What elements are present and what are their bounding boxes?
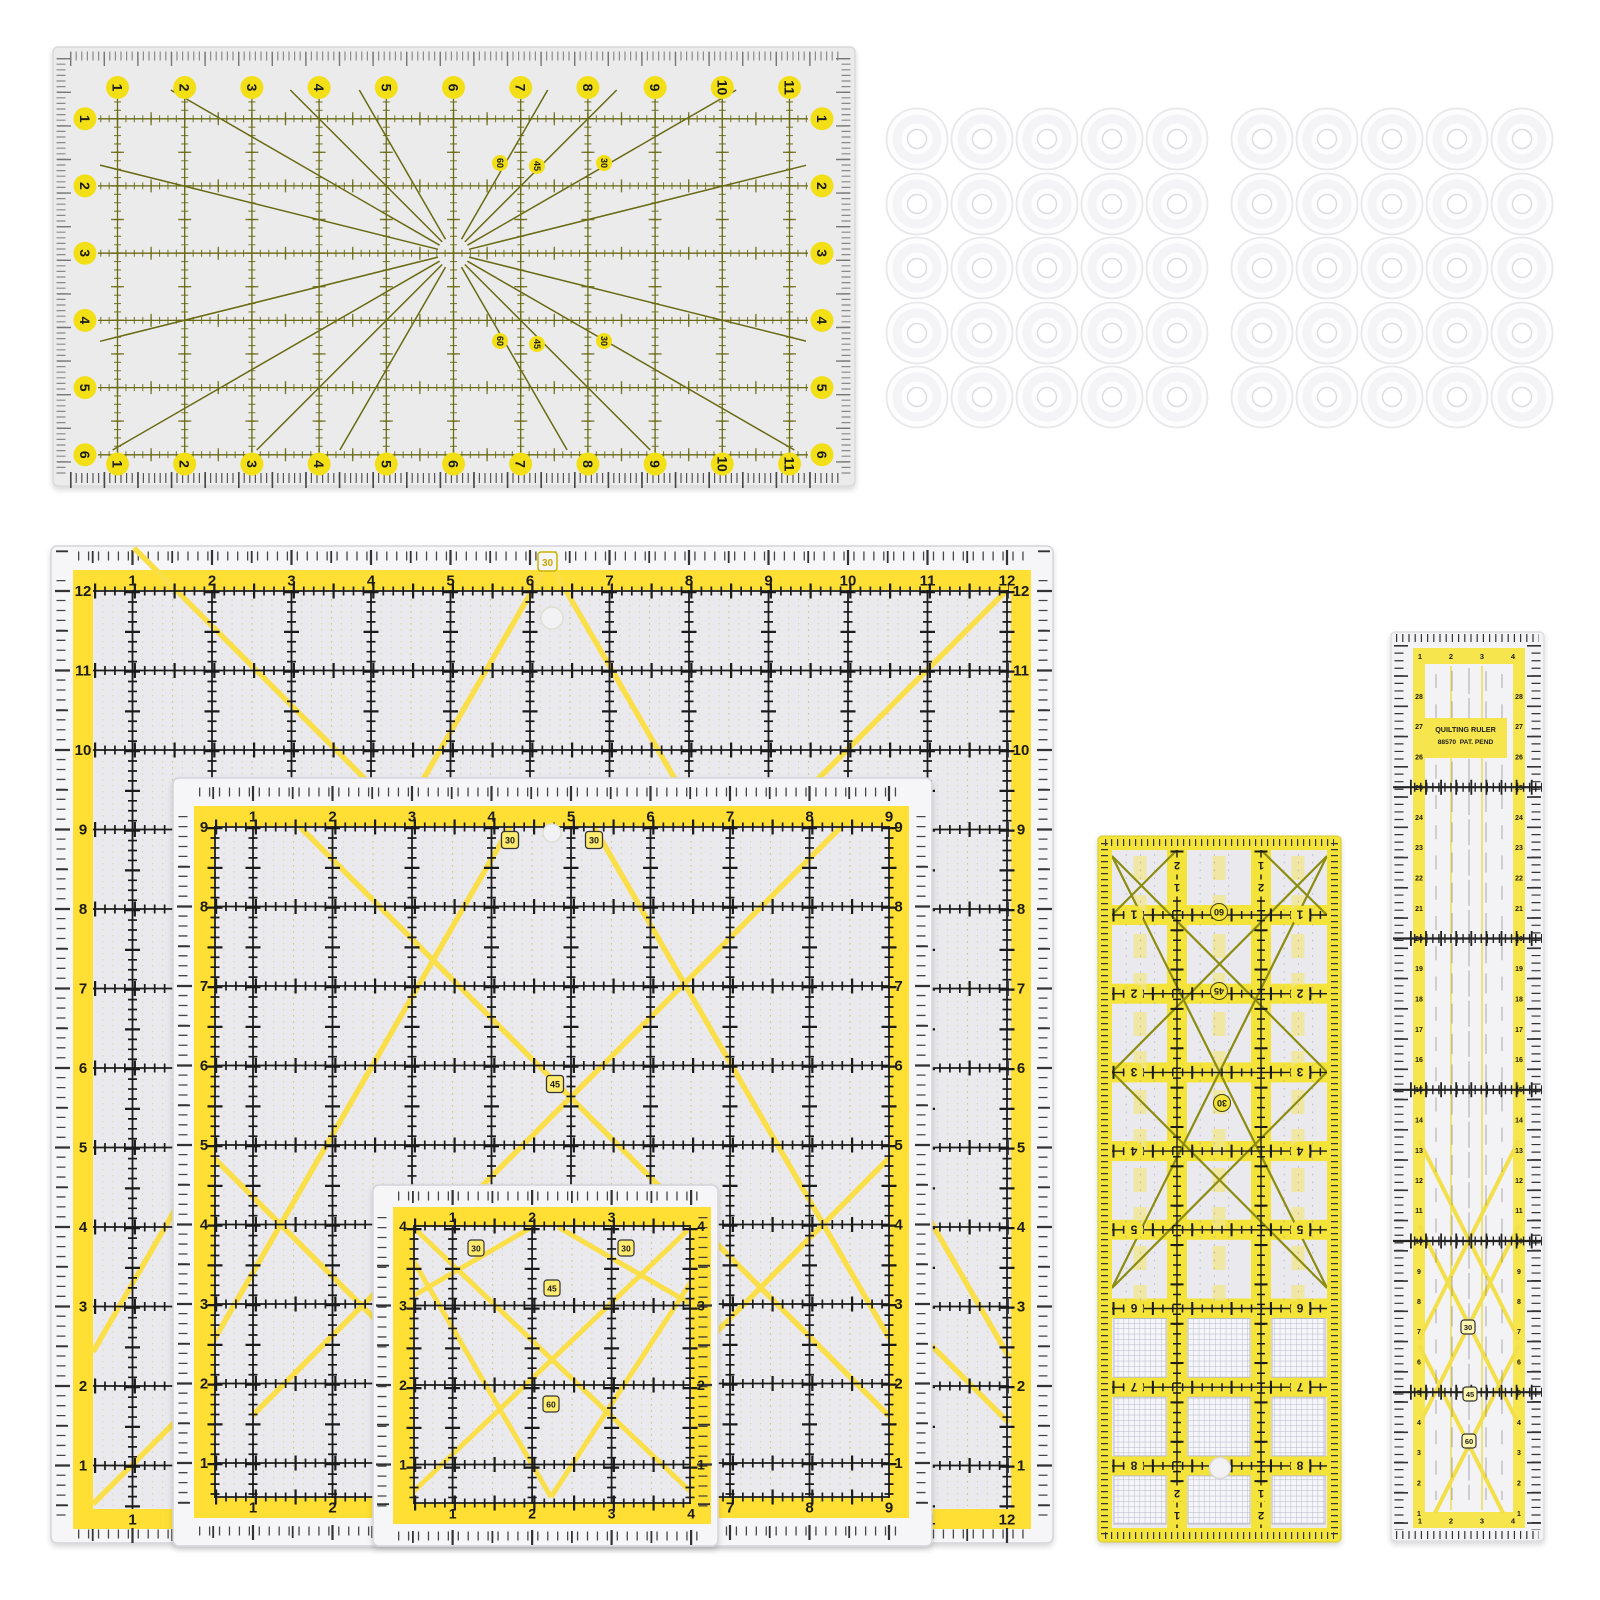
svg-text:7: 7 — [1517, 1329, 1521, 1336]
svg-text:23: 23 — [1415, 845, 1423, 852]
svg-text:18: 18 — [1415, 997, 1423, 1004]
svg-text:4: 4 — [1417, 1420, 1421, 1427]
svg-text:4: 4 — [1296, 1144, 1303, 1158]
svg-text:27: 27 — [1415, 724, 1423, 731]
svg-text:4: 4 — [814, 317, 830, 325]
svg-text:20: 20 — [1515, 936, 1523, 943]
svg-text:2: 2 — [328, 809, 336, 826]
svg-text:3: 3 — [77, 249, 93, 257]
svg-text:3: 3 — [244, 84, 260, 92]
svg-text:11: 11 — [1415, 1208, 1423, 1215]
svg-text:5: 5 — [79, 1140, 87, 1157]
svg-text:8: 8 — [580, 460, 596, 468]
svg-text:7: 7 — [1130, 1380, 1137, 1394]
svg-text:8: 8 — [894, 899, 902, 916]
svg-text:6: 6 — [200, 1058, 208, 1075]
svg-text:60: 60 — [1214, 907, 1224, 917]
svg-text:16: 16 — [1515, 1057, 1523, 1064]
svg-text:4: 4 — [687, 1506, 695, 1522]
svg-text:24: 24 — [1515, 815, 1523, 822]
svg-text:1: 1 — [1418, 652, 1422, 661]
svg-text:3: 3 — [1480, 1517, 1484, 1526]
svg-text:6: 6 — [1130, 1301, 1137, 1315]
svg-text:13: 13 — [1515, 1148, 1523, 1155]
svg-text:19: 19 — [1415, 966, 1423, 973]
svg-text:4: 4 — [487, 809, 496, 826]
svg-text:7: 7 — [726, 809, 734, 826]
svg-text:6: 6 — [446, 460, 462, 468]
svg-text:4: 4 — [367, 573, 376, 590]
svg-text:60: 60 — [495, 336, 505, 346]
svg-text:25: 25 — [1515, 785, 1523, 792]
svg-text:24: 24 — [1415, 815, 1423, 822]
svg-text:8: 8 — [79, 901, 87, 918]
svg-text:5: 5 — [378, 84, 394, 92]
svg-text:1: 1 — [1017, 1458, 1025, 1475]
svg-text:8: 8 — [200, 899, 208, 916]
svg-text:5: 5 — [1017, 1140, 1025, 1157]
svg-text:10: 10 — [1415, 1239, 1423, 1246]
svg-text:19: 19 — [1515, 966, 1523, 973]
svg-text:13: 13 — [1415, 1148, 1423, 1155]
svg-text:3: 3 — [1296, 1065, 1303, 1079]
svg-text:9: 9 — [764, 573, 772, 590]
svg-text:2: 2 — [1258, 1509, 1264, 1521]
svg-text:2: 2 — [79, 1378, 87, 1395]
svg-text:2: 2 — [1449, 652, 1453, 661]
svg-text:17: 17 — [1415, 1027, 1423, 1034]
svg-text:10: 10 — [714, 80, 730, 96]
svg-text:7: 7 — [513, 84, 529, 92]
svg-text:1: 1 — [1517, 1511, 1521, 1518]
svg-text:3: 3 — [1480, 652, 1484, 661]
svg-text:11: 11 — [782, 80, 798, 95]
svg-text:26: 26 — [1515, 755, 1523, 762]
svg-text:2: 2 — [528, 1506, 536, 1522]
svg-text:3: 3 — [1517, 1450, 1521, 1457]
svg-text:2: 2 — [328, 1500, 336, 1517]
svg-text:1: 1 — [200, 1455, 208, 1472]
svg-text:30: 30 — [471, 1244, 481, 1254]
svg-text:27: 27 — [1515, 724, 1523, 731]
svg-text:3: 3 — [894, 1296, 902, 1313]
svg-text:1: 1 — [1174, 1509, 1180, 1521]
svg-text:4: 4 — [200, 1217, 209, 1234]
svg-text:2: 2 — [399, 1377, 407, 1393]
svg-text:1: 1 — [814, 115, 830, 123]
svg-text:1: 1 — [1296, 908, 1303, 922]
svg-text:30: 30 — [621, 1244, 631, 1254]
svg-text:14: 14 — [1415, 1118, 1423, 1125]
svg-text:4: 4 — [1017, 1219, 1026, 1236]
svg-text:2: 2 — [1174, 859, 1180, 871]
svg-text:2: 2 — [77, 182, 93, 190]
svg-text:23: 23 — [1515, 845, 1523, 852]
svg-text:30: 30 — [599, 336, 609, 346]
svg-text:7: 7 — [79, 981, 87, 998]
svg-text:6: 6 — [79, 1060, 87, 1077]
svg-text:60: 60 — [1465, 1437, 1473, 1446]
svg-text:3: 3 — [697, 1298, 705, 1314]
svg-text:15: 15 — [1415, 1087, 1423, 1094]
svg-text:4: 4 — [894, 1217, 903, 1234]
svg-text:1: 1 — [399, 1457, 407, 1473]
svg-text:5: 5 — [1130, 1223, 1137, 1237]
svg-text:30: 30 — [599, 158, 609, 168]
svg-text:5: 5 — [446, 573, 454, 590]
svg-text:QUILTING RULER: QUILTING RULER — [1435, 725, 1496, 734]
svg-text:6: 6 — [446, 84, 462, 92]
svg-text:45: 45 — [550, 1080, 560, 1090]
svg-text:7: 7 — [513, 460, 529, 468]
svg-text:1: 1 — [249, 809, 257, 826]
svg-text:9: 9 — [885, 1500, 893, 1517]
svg-text:1: 1 — [1258, 859, 1264, 871]
svg-text:1: 1 — [1130, 908, 1137, 922]
svg-text:4: 4 — [311, 84, 327, 92]
svg-text:1: 1 — [1258, 1487, 1264, 1499]
svg-text:6: 6 — [646, 809, 654, 826]
svg-text:7: 7 — [894, 978, 902, 995]
svg-text:3: 3 — [287, 573, 295, 590]
svg-text:3: 3 — [608, 1209, 616, 1225]
svg-text:6: 6 — [1017, 1060, 1025, 1077]
svg-text:8: 8 — [805, 809, 813, 826]
svg-text:28: 28 — [1415, 694, 1423, 701]
svg-text:4: 4 — [1517, 1420, 1521, 1427]
svg-text:3: 3 — [200, 1296, 208, 1313]
svg-text:60: 60 — [495, 158, 505, 168]
svg-text:1: 1 — [128, 1512, 136, 1529]
svg-text:2: 2 — [1130, 986, 1137, 1000]
svg-text:10: 10 — [714, 456, 730, 472]
svg-text:10: 10 — [840, 573, 857, 590]
svg-text:2: 2 — [1174, 1487, 1180, 1499]
svg-text:1: 1 — [249, 1500, 257, 1517]
svg-text:9: 9 — [885, 809, 893, 826]
svg-text:9: 9 — [647, 84, 663, 92]
svg-text:7: 7 — [1017, 981, 1025, 998]
svg-text:2: 2 — [1417, 1481, 1421, 1488]
svg-text:30: 30 — [589, 836, 599, 846]
svg-text:6: 6 — [814, 451, 830, 459]
svg-text:2: 2 — [1296, 986, 1303, 1000]
svg-text:14: 14 — [1515, 1118, 1523, 1125]
svg-text:3: 3 — [1417, 1450, 1421, 1457]
svg-text:12: 12 — [1415, 1178, 1423, 1185]
svg-text:5: 5 — [567, 809, 575, 826]
svg-text:5: 5 — [1296, 1223, 1303, 1237]
svg-text:45: 45 — [532, 339, 542, 349]
svg-text:30: 30 — [542, 558, 554, 569]
svg-text:5: 5 — [814, 384, 830, 392]
svg-text:5: 5 — [200, 1137, 208, 1154]
svg-text:25: 25 — [1415, 785, 1423, 792]
svg-text:9: 9 — [1417, 1269, 1421, 1276]
svg-text:10: 10 — [1515, 1239, 1523, 1246]
svg-text:2: 2 — [1449, 1517, 1453, 1526]
svg-text:30: 30 — [1464, 1323, 1472, 1332]
svg-text:1: 1 — [894, 1455, 902, 1472]
svg-text:1: 1 — [1174, 881, 1180, 893]
svg-text:26: 26 — [1415, 755, 1423, 762]
svg-text:2: 2 — [1017, 1378, 1025, 1395]
svg-text:8: 8 — [1296, 1459, 1303, 1473]
svg-text:28: 28 — [1515, 694, 1523, 701]
svg-text:45: 45 — [547, 1284, 557, 1294]
svg-text:4: 4 — [77, 317, 93, 325]
svg-text:8: 8 — [1417, 1299, 1421, 1306]
svg-text:1: 1 — [1418, 1517, 1422, 1526]
svg-text:22: 22 — [1415, 876, 1423, 883]
svg-text:7: 7 — [1296, 1380, 1303, 1394]
svg-text:11: 11 — [782, 457, 798, 472]
svg-text:4: 4 — [399, 1218, 407, 1234]
svg-text:3: 3 — [1130, 1065, 1137, 1079]
svg-text:9: 9 — [894, 819, 902, 836]
svg-text:3: 3 — [399, 1298, 407, 1314]
svg-text:8: 8 — [805, 1500, 813, 1517]
svg-text:2: 2 — [697, 1377, 705, 1393]
svg-text:2: 2 — [528, 1209, 536, 1225]
svg-text:8: 8 — [1130, 1459, 1137, 1473]
svg-text:4: 4 — [311, 460, 327, 468]
svg-text:1: 1 — [79, 1458, 87, 1475]
svg-text:2: 2 — [200, 1376, 208, 1393]
svg-text:8: 8 — [1017, 901, 1025, 918]
svg-text:12: 12 — [1013, 583, 1030, 600]
svg-text:5: 5 — [378, 460, 394, 468]
svg-text:3: 3 — [814, 249, 830, 257]
svg-text:4: 4 — [697, 1218, 705, 1234]
svg-text:7: 7 — [605, 573, 613, 590]
svg-text:6: 6 — [1296, 1301, 1303, 1315]
svg-text:6: 6 — [894, 1058, 902, 1075]
svg-text:2: 2 — [1517, 1481, 1521, 1488]
svg-text:30: 30 — [1217, 1098, 1227, 1108]
svg-text:12: 12 — [999, 1512, 1016, 1529]
svg-text:3: 3 — [79, 1299, 87, 1316]
svg-text:1: 1 — [110, 460, 126, 468]
svg-text:7: 7 — [726, 1500, 734, 1517]
svg-text:1: 1 — [110, 84, 126, 92]
svg-text:16: 16 — [1415, 1057, 1423, 1064]
svg-text:8: 8 — [1517, 1299, 1521, 1306]
svg-text:15: 15 — [1515, 1087, 1523, 1094]
svg-text:3: 3 — [1017, 1299, 1025, 1316]
svg-text:9: 9 — [200, 819, 208, 836]
svg-text:5: 5 — [77, 384, 93, 392]
svg-text:11: 11 — [1515, 1208, 1523, 1215]
svg-text:21: 21 — [1415, 906, 1423, 913]
svg-text:12: 12 — [75, 583, 92, 600]
svg-text:2: 2 — [177, 460, 193, 468]
svg-text:4: 4 — [1130, 1144, 1137, 1158]
svg-text:1: 1 — [128, 573, 136, 590]
svg-text:4: 4 — [79, 1219, 88, 1236]
svg-text:30: 30 — [505, 836, 515, 846]
svg-text:3: 3 — [608, 1506, 616, 1522]
svg-text:6: 6 — [77, 451, 93, 459]
svg-text:45: 45 — [532, 161, 542, 171]
svg-text:60: 60 — [546, 1400, 556, 1410]
svg-text:2: 2 — [208, 573, 216, 590]
svg-text:2: 2 — [894, 1376, 902, 1393]
svg-text:45: 45 — [1466, 1390, 1474, 1399]
svg-text:11: 11 — [920, 573, 936, 590]
svg-text:22: 22 — [1515, 876, 1523, 883]
svg-text:3: 3 — [408, 809, 416, 826]
svg-text:6: 6 — [526, 573, 534, 590]
svg-text:6: 6 — [1417, 1360, 1421, 1367]
svg-text:8: 8 — [580, 84, 596, 92]
svg-text:5: 5 — [894, 1137, 902, 1154]
svg-text:18: 18 — [1515, 997, 1523, 1004]
svg-text:1: 1 — [77, 115, 93, 123]
svg-text:10: 10 — [75, 742, 92, 759]
svg-text:6: 6 — [1517, 1360, 1521, 1367]
svg-text:12: 12 — [1515, 1178, 1523, 1185]
svg-text:9: 9 — [79, 822, 87, 839]
svg-text:2: 2 — [177, 84, 193, 92]
svg-text:9: 9 — [1517, 1269, 1521, 1276]
svg-text:20: 20 — [1415, 936, 1423, 943]
svg-text:9: 9 — [647, 460, 663, 468]
svg-text:17: 17 — [1515, 1027, 1523, 1034]
svg-text:11: 11 — [1013, 663, 1029, 680]
svg-text:5: 5 — [1417, 1390, 1421, 1397]
svg-text:9: 9 — [1017, 822, 1025, 839]
svg-text:8: 8 — [685, 573, 693, 590]
svg-text:1: 1 — [697, 1457, 705, 1473]
svg-text:1: 1 — [449, 1209, 457, 1225]
svg-text:21: 21 — [1515, 906, 1523, 913]
svg-text:7: 7 — [1417, 1329, 1421, 1336]
svg-text:11: 11 — [75, 663, 91, 680]
svg-text:7: 7 — [200, 978, 208, 995]
svg-text:2: 2 — [814, 182, 830, 190]
svg-text:10: 10 — [1013, 742, 1030, 759]
svg-text:2: 2 — [1258, 881, 1264, 893]
svg-text:5: 5 — [1517, 1390, 1521, 1397]
svg-text:88570 PAT. PEND: 88570 PAT. PEND — [1438, 739, 1494, 746]
svg-text:1: 1 — [449, 1506, 457, 1522]
svg-text:45: 45 — [1214, 986, 1224, 996]
svg-text:3: 3 — [244, 460, 260, 468]
